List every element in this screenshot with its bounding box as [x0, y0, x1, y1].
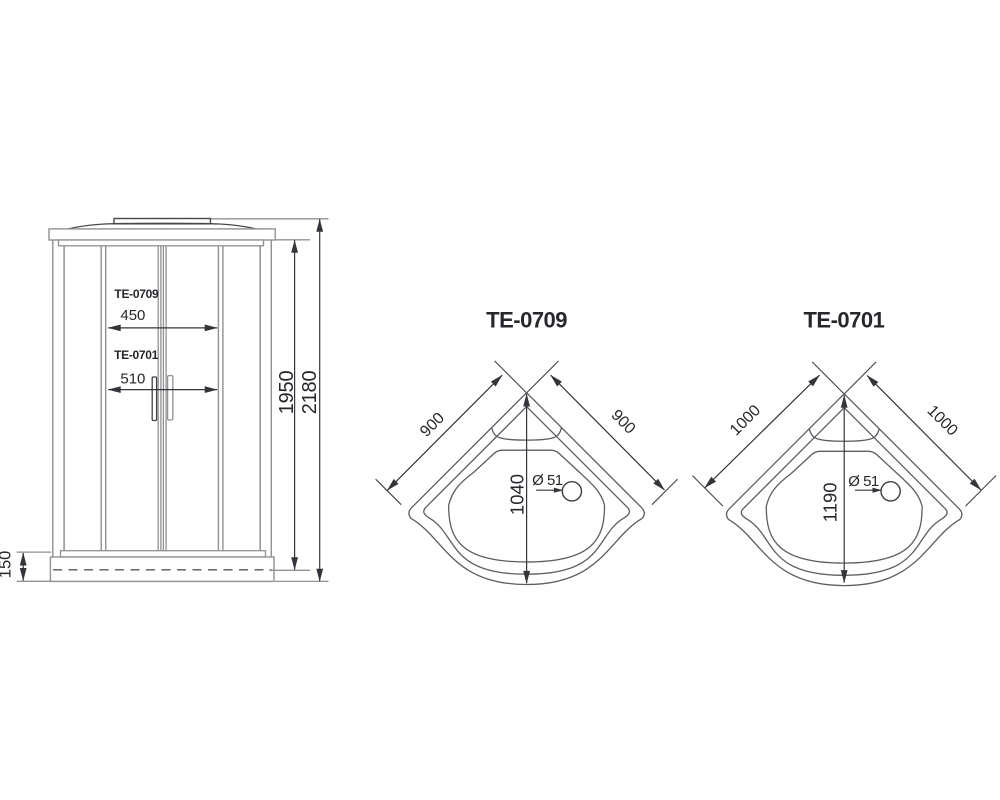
svg-text:900: 900 — [417, 410, 448, 441]
svg-text:1000: 1000 — [727, 402, 764, 439]
svg-text:Ø 51: Ø 51 — [532, 472, 563, 489]
svg-text:1190: 1190 — [820, 482, 841, 522]
svg-text:510: 510 — [120, 370, 145, 387]
svg-text:2180: 2180 — [299, 371, 321, 415]
svg-text:TE-0709: TE-0709 — [486, 308, 567, 333]
svg-text:1950: 1950 — [276, 371, 298, 415]
svg-text:TE-0709: TE-0709 — [114, 287, 159, 301]
svg-text:TE-0701: TE-0701 — [803, 308, 884, 333]
svg-text:Ø 51: Ø 51 — [848, 473, 879, 490]
svg-text:1000: 1000 — [924, 402, 961, 439]
svg-text:150: 150 — [0, 551, 15, 579]
svg-text:900: 900 — [607, 407, 638, 438]
svg-text:TE-0701: TE-0701 — [114, 348, 159, 362]
svg-text:450: 450 — [120, 307, 145, 324]
svg-text:1040: 1040 — [506, 474, 527, 515]
